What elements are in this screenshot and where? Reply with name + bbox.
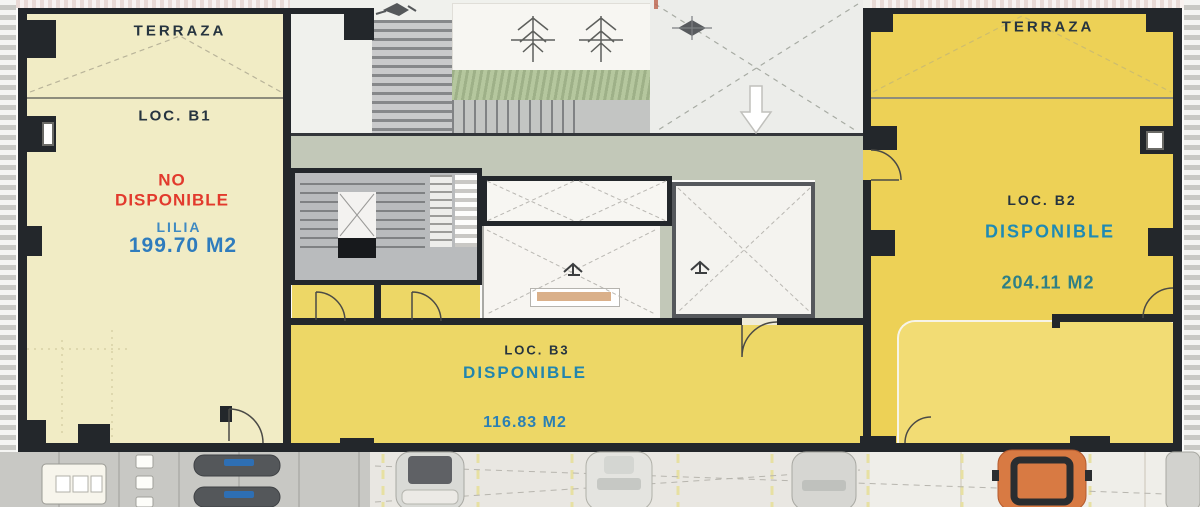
floor-plan: TERRAZA LOC. B1 NO DISPONIBLE LILIA 199.… bbox=[0, 0, 1200, 507]
wall-b3-top-mid bbox=[480, 318, 742, 325]
unit-name-b3: LOC. B3 bbox=[504, 343, 569, 358]
street-right bbox=[870, 452, 1200, 507]
terrace-label-b2: TERRAZA bbox=[1002, 19, 1095, 36]
door-opening-b3 bbox=[742, 318, 777, 325]
unit-b1-floor bbox=[27, 8, 283, 452]
door-opening-b2-left bbox=[863, 148, 871, 180]
column-b2-top-left bbox=[863, 8, 893, 32]
status-b3: DISPONIBLE bbox=[463, 363, 587, 383]
column-b1-top-left bbox=[18, 20, 56, 58]
terrace-label-b1: TERRAZA bbox=[134, 23, 227, 40]
tenant-b1: LILIA bbox=[157, 219, 202, 235]
unit-b3-floor bbox=[291, 325, 863, 443]
walkway-edge-line bbox=[290, 133, 863, 136]
area-b3: 116.83 M2 bbox=[483, 414, 567, 432]
elevator-shaft bbox=[338, 238, 376, 258]
area-b1: 199.70 M2 bbox=[129, 234, 237, 258]
column-bottom-1 bbox=[340, 438, 374, 452]
sage-path-right bbox=[815, 137, 863, 335]
walkway-step-treads bbox=[452, 100, 582, 133]
column-b1-mid bbox=[18, 226, 42, 256]
ramp-stairs bbox=[372, 20, 452, 133]
core-side-stair bbox=[430, 175, 452, 247]
window-b1 bbox=[42, 122, 54, 146]
wall-top-b1 bbox=[18, 8, 346, 14]
terrace-line-b2 bbox=[871, 97, 1173, 99]
hedge-strip bbox=[452, 70, 670, 100]
column-b2-right-mid bbox=[1148, 228, 1182, 256]
window-b2 bbox=[1146, 131, 1164, 150]
wall-bottom bbox=[18, 443, 1173, 452]
terrace-line-b1 bbox=[27, 97, 283, 99]
left-dimension-ticks bbox=[0, 0, 16, 452]
wall-b2-rear bbox=[1052, 314, 1173, 322]
column-b2-left-2 bbox=[863, 230, 895, 256]
door-stub-b1 bbox=[220, 406, 232, 422]
courtyard-upper-room bbox=[482, 176, 672, 226]
column-bottom-3 bbox=[1070, 436, 1110, 452]
core-service-closet bbox=[455, 175, 477, 247]
column-b2-left-1 bbox=[863, 126, 897, 150]
wall-top-b2 bbox=[863, 8, 1173, 14]
wall-b3-top-right bbox=[777, 318, 863, 325]
column-b1-top-right bbox=[344, 8, 374, 40]
parking-bay-room bbox=[672, 182, 815, 318]
wall-b1-right bbox=[283, 8, 291, 452]
driveway-ramp bbox=[650, 0, 863, 137]
unit-name-b2: LOC. B2 bbox=[1007, 192, 1076, 208]
column-bottom-2 bbox=[860, 436, 896, 452]
unit-b2-rear-room bbox=[897, 320, 1175, 445]
unit-name-b1: LOC. B1 bbox=[138, 108, 211, 125]
bench-planter-top bbox=[537, 292, 611, 301]
wall-b3-top-left bbox=[291, 318, 480, 325]
column-b1-bottom-step bbox=[78, 424, 110, 443]
planting-bed bbox=[452, 3, 670, 72]
area-b2: 204.11 M2 bbox=[1001, 273, 1094, 294]
status-b1: NO DISPONIBLE bbox=[112, 170, 232, 209]
right-dimension-ticks bbox=[1184, 0, 1200, 452]
column-b2-top-right bbox=[1146, 8, 1173, 32]
status-b2: DISPONIBLE bbox=[985, 222, 1115, 243]
elevator-landing bbox=[338, 192, 376, 238]
wall-b2-rear-stub bbox=[1052, 314, 1060, 328]
sidewalk-left bbox=[0, 452, 370, 507]
